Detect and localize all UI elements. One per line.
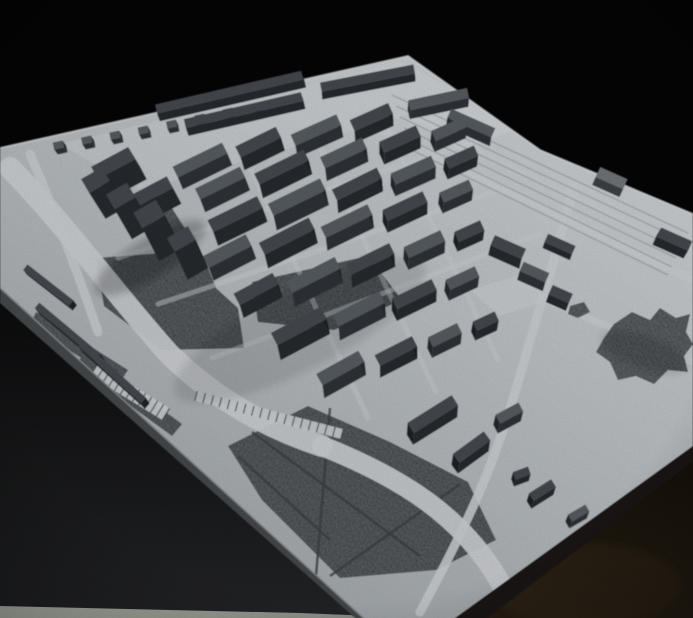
architectural-model-photo <box>0 0 693 618</box>
model-scene <box>0 0 693 618</box>
photo-overlay <box>0 0 693 618</box>
photo-grain <box>0 0 693 618</box>
